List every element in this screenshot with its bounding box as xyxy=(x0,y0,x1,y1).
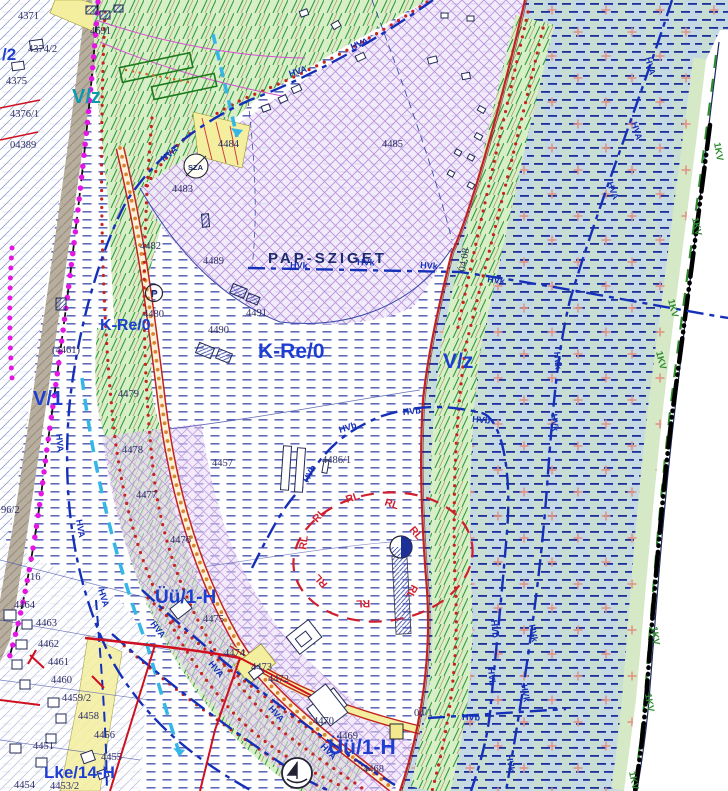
zone-code-label: V/z xyxy=(443,350,473,373)
parcel-number: 4477 xyxy=(136,490,157,501)
parcel-number: 4479 xyxy=(118,389,139,400)
parcel-number: 4457 xyxy=(212,458,233,469)
symbol-label: SZA xyxy=(188,163,204,172)
parcel-number: 4458 xyxy=(78,711,99,722)
parcel-number: 4483 xyxy=(172,184,193,195)
building-footprint xyxy=(48,698,59,707)
building-footprint xyxy=(201,214,209,228)
building-footprint xyxy=(12,660,22,669)
building-footprint xyxy=(86,6,97,14)
zone-code-label: V/z xyxy=(72,86,101,108)
building-footprint xyxy=(20,680,30,689)
zone-code-label: K-Re/0 xyxy=(100,317,151,334)
utility-line-label: HVk xyxy=(290,260,309,271)
parcel-number: 4464 xyxy=(14,600,36,611)
parcel-number: 4374/2 xyxy=(28,44,57,55)
zone-code-label: Üü/1-H xyxy=(328,736,396,759)
parcel-number: 4476 xyxy=(170,535,191,546)
utility-line-label: HVb xyxy=(472,414,491,426)
parcel-number: 4456 xyxy=(94,730,115,741)
utility-line-label: HVA xyxy=(54,433,66,453)
zone-code-label: V/1 xyxy=(33,388,63,410)
parcel-number: 4478 xyxy=(122,445,143,456)
zoning-map-page: 43714374/243754376/104389469144844483448… xyxy=(0,0,728,791)
parcel-number: 4460 xyxy=(51,675,72,686)
utility-line-label: HVb xyxy=(486,667,498,686)
parcel-number: 4468 xyxy=(363,764,384,775)
parcel-number: 4475 xyxy=(203,614,224,625)
parcel-number: 4472 xyxy=(268,674,289,685)
building-footprint xyxy=(4,610,16,620)
building-footprint xyxy=(22,620,32,629)
utility-line-label: HVb xyxy=(462,712,481,723)
utility-line-label: HVb xyxy=(489,619,501,638)
building-footprint xyxy=(114,5,123,12)
parcel-number: 4484 xyxy=(218,139,240,150)
parcel-number: 4486/1 xyxy=(322,455,351,466)
building-footprint xyxy=(441,13,448,18)
parcel-number: 4451 xyxy=(33,741,54,752)
symbol-label: P xyxy=(151,289,158,300)
parcel-number: 4473 xyxy=(251,662,272,673)
parcel-number: 16 xyxy=(30,572,41,583)
building-footprint xyxy=(10,744,21,753)
building-footprint xyxy=(16,640,27,649)
parcel-number: 4376/1 xyxy=(10,109,39,120)
parcel-number: 4491 xyxy=(246,308,267,319)
parcel-number: 4459/2 xyxy=(62,693,91,704)
parcel-number: 4453/2 xyxy=(50,781,79,791)
zone-code-label: Üü/1-H xyxy=(155,587,216,608)
parcel-number: 4482 xyxy=(140,241,161,252)
parcel-number: 04/1 xyxy=(414,708,433,719)
building-footprint xyxy=(56,298,66,310)
parcel-number: 4470 xyxy=(313,716,334,727)
parcel-number: 4463 xyxy=(36,618,57,629)
parcel-number: 4371 xyxy=(18,11,39,22)
utility-line-label: HVk xyxy=(552,351,564,370)
parcel-number: 4474 xyxy=(224,648,246,659)
utility-line-label: HVk xyxy=(357,257,376,268)
zone-code-label: /2 xyxy=(2,45,16,64)
utility-line-label: HVk xyxy=(420,260,439,271)
parcel-number: 4455 xyxy=(101,752,122,763)
parcel-number: 4461 xyxy=(48,657,69,668)
protection-label: RL xyxy=(355,597,370,610)
parcel-number: 4490 xyxy=(208,325,229,336)
parcel-number: (4461) xyxy=(52,345,80,356)
building-footprint xyxy=(56,714,66,723)
parcel-number: 4454 xyxy=(14,780,36,791)
parcel-number: 96/2 xyxy=(1,505,20,516)
zone-code-label: Lke/14-H xyxy=(44,763,115,782)
parcel-number: 4691 xyxy=(90,26,111,37)
protection-label: RL xyxy=(297,534,311,550)
marina-symbol xyxy=(282,758,312,788)
parcel-number: 4462 xyxy=(38,639,59,650)
building-footprint xyxy=(467,16,474,21)
zone-code-label: K-Re/0 xyxy=(258,340,325,363)
parcel-number: 4485 xyxy=(382,139,403,150)
parcel-number: 04389 xyxy=(10,140,36,151)
building-footprint xyxy=(462,72,471,79)
zoning-map-canvas[interactable]: 43714374/243754376/104389469144844483448… xyxy=(0,0,728,791)
parcel-number: 4489 xyxy=(203,256,224,267)
utility-line-label: HVb xyxy=(402,405,421,417)
parcel-number: 4375 xyxy=(6,76,27,87)
utility-line-label: HVk xyxy=(549,413,561,432)
building-footprint xyxy=(100,11,110,19)
